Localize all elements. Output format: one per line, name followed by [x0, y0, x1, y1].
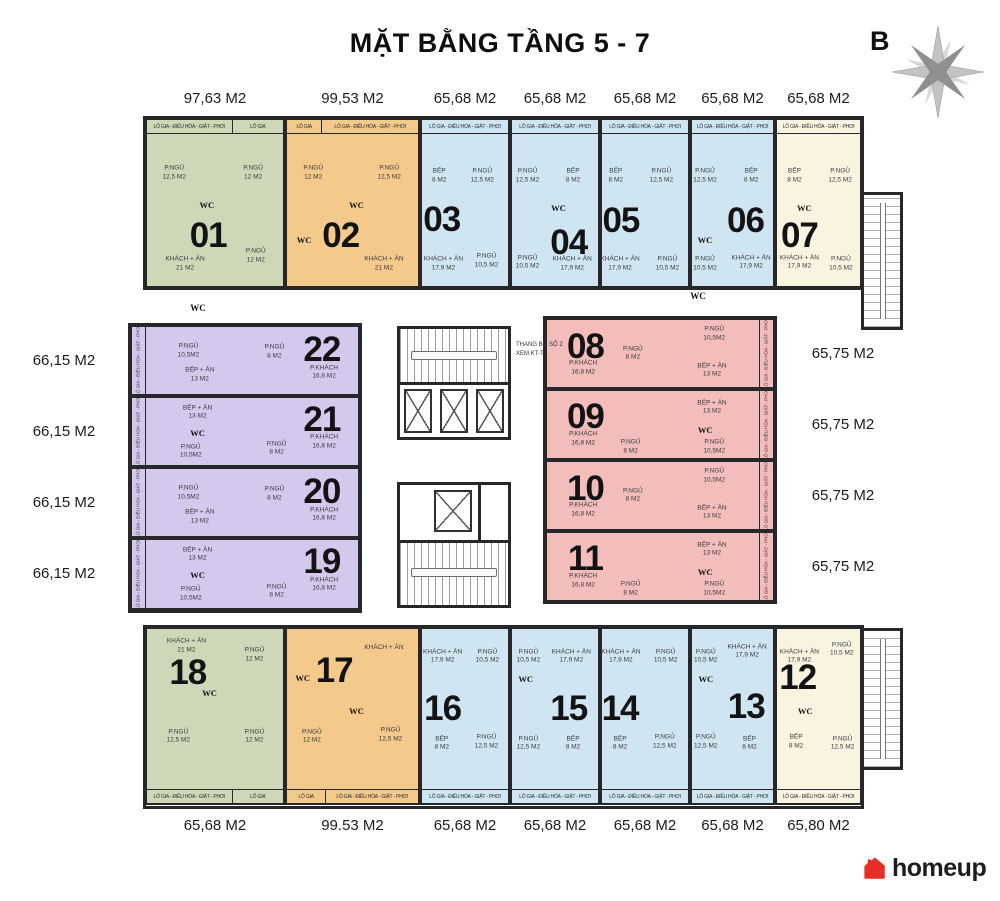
apartment-number-10: 10 [567, 469, 604, 509]
balcony-strip: LÔ GIA - ĐIỀU HÒA - GIẶT - PHƠI [602, 120, 688, 134]
room-label: P.NGỦ8 M2 [623, 345, 643, 362]
balcony-strip: LÔ GIA - ĐIỀU HÒA - GIẶT - PHƠI [777, 120, 860, 134]
balcony-strip: LÔ GIA - ĐIỀU HÒA - GIẶT - PHƠI [132, 540, 146, 608]
apartment-number-01: 01 [190, 216, 227, 256]
room-label: BẾP + ĂN13 M2 [697, 504, 726, 521]
area-label-19: 66,15 M2 [18, 565, 110, 582]
stair-note: THANG BỘ SỐ 2 XEM KT-T [516, 341, 563, 359]
area-label-20: 66,15 M2 [18, 494, 110, 511]
room-label: P.NGỦ12 M2 [245, 728, 265, 745]
wc-label: WC [798, 706, 813, 716]
apartment-number-05: 05 [602, 201, 639, 241]
room-label: P.NGỦ10,5M2 [178, 343, 200, 360]
wc-label: WC [518, 674, 533, 684]
compass-star-icon [890, 24, 986, 120]
apartment-number-20: 20 [303, 472, 340, 512]
apartment-21: LÔ GIA - ĐIỀU HÒA - GIẶT - PHƠIBẾP + ĂN1… [130, 396, 360, 467]
area-label-22: 66,15 M2 [18, 352, 110, 369]
balcony-strip: LÔ GIA - ĐIỀU HÒA - GIẶT - PHƠI [132, 398, 146, 465]
balcony-label: LÔ GIA - ĐIỀU HÒA - GIẶT - PHƠI [147, 790, 233, 803]
apartment-number-13: 13 [728, 687, 765, 727]
room-label: KHÁCH + ĂN17,9 M2 [601, 648, 640, 665]
elevator-icon [404, 389, 432, 433]
apartment-19: LÔ GIA - ĐIỀU HÒA - GIẶT - PHƠIBẾP + ĂN1… [130, 538, 360, 610]
elevator-icon [434, 490, 472, 532]
area-label-13: 65,68 M2 [690, 817, 775, 834]
room-label: P.NGỦ10,5 M2 [516, 254, 540, 271]
room-label: BẾP8 M2 [789, 734, 803, 751]
room-label: P.NGỦ12,5 M2 [653, 734, 677, 751]
corridor-wc-label: WC [190, 303, 206, 313]
room-label: P.NGỦ10,5M2 [703, 581, 725, 598]
area-label-10: 65,75 M2 [797, 487, 889, 504]
balcony-label: LÔ GIA - ĐIỀU HÒA - GIẶT - PHƠI [322, 120, 418, 133]
room-label: P.NGỦ10,5 M2 [694, 648, 718, 665]
stair-elevator-core-upper [397, 326, 511, 440]
room-label: P.NGỦ10,5 M2 [654, 648, 678, 665]
area-label-09: 65,75 M2 [797, 416, 889, 433]
balcony-strip: LÔ GIALÔ GIA - ĐIỀU HÒA - GIẶT - PHƠI [287, 120, 418, 134]
balcony-label: LÔ GIA - ĐIỀU HÒA - GIẶT - PHƠI [147, 120, 233, 133]
balcony-label: LÔ GIA - ĐIỀU HÒA - GIẶT - PHƠI [512, 120, 598, 133]
wc-label: WC [200, 200, 215, 210]
balcony-label: LÔ GIA - ĐIỀU HÒA - GIẶT - PHƠI [326, 790, 418, 803]
apartment-11: LÔ GIA - ĐIỀU HÒA - GIẶT - PHƠIP.KHÁCH16… [545, 531, 775, 602]
room-label: BẾP + ĂN13 M2 [185, 367, 214, 384]
balcony-strip: LÔ GIA - ĐIỀU HÒA - GIẶT - PHƠILÔ GIA [147, 789, 283, 803]
apartment-14: LÔ GIA - ĐIỀU HÒA - GIẶT - PHƠIKHÁCH + Ă… [600, 627, 690, 805]
room-label: P.NGỦ10,5M2 [180, 443, 202, 460]
area-label-07: 65,68 M2 [775, 90, 862, 107]
balcony-label: LÔ GIA - ĐIỀU HÒA - GIẶT - PHƠI [692, 120, 773, 133]
room-label: P.NGỦ12,5 M2 [162, 165, 186, 182]
corridor-wc-label: WC [690, 291, 706, 301]
room-label: BẾP8 M2 [435, 735, 449, 752]
room-label: P.NGỦ8 M2 [623, 487, 643, 504]
balcony-strip: LÔ GIA - ĐIỀU HÒA - GIẶT - PHƠI [512, 120, 598, 134]
balcony-label: LÔ GIA - ĐIỀU HÒA - GIẶT - PHƠI [764, 533, 769, 600]
apartment-number-14: 14 [602, 689, 639, 729]
room-label: KHÁCH + ĂN21 M2 [364, 256, 403, 273]
room-label: BẾP8 M2 [609, 168, 623, 185]
balcony-label: LÔ GIA - ĐIỀU HÒA - GIẶT - PHƠI [764, 462, 769, 529]
balcony-strip: LÔ GIA - ĐIỀU HÒA - GIẶT - PHƠI [422, 120, 508, 134]
balcony-strip: LÔ GIA - ĐIỀU HÒA - GIẶT - PHƠI [132, 469, 146, 536]
balcony-strip: LÔ GIA - ĐIỀU HÒA - GIẶT - PHƠILÔ GIA [147, 120, 283, 134]
apartment-08: LÔ GIA - ĐIỀU HÒA - GIẶT - PHƠIP.KHÁCH16… [545, 318, 775, 389]
balcony-label: LÔ GIA - ĐIỀU HÒA - GIẶT - PHƠI [692, 790, 773, 803]
apartment-number-08: 08 [567, 327, 604, 367]
room-label: P.NGỦ12 M2 [246, 248, 266, 265]
room-label: BẾP8 M2 [742, 735, 756, 752]
apartment-number-04: 04 [550, 223, 587, 263]
balcony-label: LÔ GIA - ĐIỀU HÒA - GIẶT - PHƠI [136, 398, 141, 465]
area-label-05: 65,68 M2 [600, 90, 690, 107]
balcony-label: LÔ GIA - ĐIỀU HÒA - GIẶT - PHƠI [136, 327, 141, 394]
room-label: KHÁCH + ĂN [364, 644, 403, 652]
room-label: P.NGỦ12,5 M2 [694, 734, 718, 751]
floor-plan-canvas: MẶT BẰNG TẦNG 5 - 7 B THANG BỘ SỐ 2 XEM … [0, 0, 1000, 901]
balcony-label: LÔ GIA [287, 120, 322, 133]
balcony-strip: LÔ GIA - ĐIỀU HÒA - GIẶT - PHƠI [692, 120, 773, 134]
balcony-label: LÔ GIA [287, 790, 326, 803]
area-label-15: 65,68 M2 [510, 817, 600, 834]
room-label: BẾP8 M2 [566, 168, 580, 185]
balcony-strip: LÔ GIA - ĐIỀU HÒA - GIẶT - PHƠI [512, 789, 598, 803]
room-label: P.NGỦ8 M2 [265, 344, 285, 361]
balcony-strip: LÔ GIA - ĐIỀU HÒA - GIẶT - PHƠI [759, 462, 773, 529]
room-label: KHÁCH + ĂN17,9 M2 [552, 648, 591, 665]
balcony-strip: LÔ GIA - ĐIỀU HÒA - GIẶT - PHƠI [759, 391, 773, 458]
apartment-number-22: 22 [303, 330, 340, 370]
apartment-15: LÔ GIA - ĐIỀU HÒA - GIẶT - PHƠIP.NGỦ10,5… [510, 627, 600, 805]
room-label: P.NGỦ8 M2 [621, 439, 641, 456]
apartment-17: LÔ GIALÔ GIA - ĐIỀU HÒA - GIẶT - PHƠIKHÁ… [285, 627, 420, 805]
compass-north-label: B [870, 26, 890, 57]
apartment-04: LÔ GIA - ĐIỀU HÒA - GIẶT - PHƠIP.NGỦ12,5… [510, 118, 600, 288]
stair-divider [880, 639, 886, 759]
apartment-07: LÔ GIA - ĐIỀU HÒA - GIẶT - PHƠIBẾP8 M2P.… [775, 118, 862, 288]
apartment-20: LÔ GIA - ĐIỀU HÒA - GIẶT - PHƠIP.NGỦ10,5… [130, 467, 360, 538]
apartment-number-12: 12 [779, 658, 816, 698]
apartment-number-11: 11 [568, 539, 603, 579]
room-label: KHÁCH + ĂN17,9 M2 [732, 254, 771, 271]
balcony-label: LÔ GIA - ĐIỀU HÒA - GIẶT - PHƠI [422, 120, 508, 133]
room-label: P.NGỦ8 M2 [265, 486, 285, 503]
wc-label: WC [297, 235, 312, 245]
balcony-strip: LÔ GIA - ĐIỀU HÒA - GIẶT - PHƠI [132, 327, 146, 394]
stair-note-line1: THANG BỘ SỐ 2 [516, 341, 563, 350]
apartment-03: LÔ GIA - ĐIỀU HÒA - GIẶT - PHƠIBẾP8 M2P.… [420, 118, 510, 288]
apartment-10: LÔ GIA - ĐIỀU HÒA - GIẶT - PHƠIP.KHÁCH16… [545, 460, 775, 531]
room-label: BẾP8 M2 [613, 735, 627, 752]
wc-label: WC [295, 673, 310, 683]
room-label: P.NGỦ10,5 M2 [517, 648, 541, 665]
area-label-12: 65,80 M2 [775, 817, 862, 834]
apartment-number-15: 15 [550, 689, 587, 729]
apartment-number-21: 21 [303, 400, 340, 440]
apartment-05: LÔ GIA - ĐIỀU HÒA - GIẶT - PHƠIBẾP8 M2P.… [600, 118, 690, 288]
wc-label: WC [190, 570, 205, 580]
balcony-strip: LÔ GIA - ĐIỀU HÒA - GIẶT - PHƠI [422, 789, 508, 803]
wc-label: WC [698, 425, 713, 435]
room-label: P.NGỦ10,5 M2 [693, 256, 717, 273]
room-label: P.NGỦ10,5M2 [703, 326, 725, 343]
apartment-06: LÔ GIA - ĐIỀU HÒA - GIẶT - PHƠIP.NGỦ12,5… [690, 118, 775, 288]
brand-logo: homeup [860, 848, 992, 888]
room-label: P.NGỦ12 M2 [302, 728, 322, 745]
house-icon [860, 854, 888, 882]
balcony-label: LÔ GIA - ĐIỀU HÒA - GIẶT - PHƠI [777, 120, 860, 133]
area-label-14: 65,68 M2 [600, 817, 690, 834]
wc-label: WC [797, 203, 812, 213]
apartment-number-16: 16 [424, 689, 461, 729]
room-label: P.NGỦ12,5 M2 [377, 165, 401, 182]
room-label: P.NGỦ12,5 M2 [516, 168, 540, 185]
room-label: P.NGỦ10,5 M2 [829, 256, 853, 273]
room-label: P.NGỦ10,5M2 [703, 439, 725, 456]
room-label: P.NGỦ8 M2 [267, 583, 287, 600]
room-label: P.NGỦ10,5M2 [703, 468, 725, 485]
room-label: BẾP8 M2 [787, 168, 801, 185]
wc-label: WC [698, 235, 713, 245]
room-label: KHÁCH + ĂN17,9 M2 [600, 256, 639, 273]
room-label: BẾP + ĂN13 M2 [697, 362, 726, 379]
side-staircase-bottom [861, 628, 903, 770]
wc-label: WC [698, 674, 713, 684]
area-label-16: 65,68 M2 [420, 817, 510, 834]
room-label: KHÁCH + ĂN17,9 M2 [780, 254, 819, 271]
apartment-18: LÔ GIA - ĐIỀU HÒA - GIẶT - PHƠILÔ GIAKHÁ… [145, 627, 285, 805]
area-label-08: 65,75 M2 [797, 345, 889, 362]
room-label: BẾP8 M2 [744, 168, 758, 185]
room-label: P.NGỦ12,5 M2 [167, 728, 191, 745]
elevator-icon [476, 389, 504, 433]
room-label: P.NGỦ10,5M2 [180, 586, 202, 603]
room-label: P.NGỦ8 M2 [267, 440, 287, 457]
room-label: P.NGỦ12,5 M2 [828, 168, 852, 185]
balcony-label: LÔ GIA - ĐIỀU HÒA - GIẶT - PHƠI [136, 540, 141, 608]
balcony-label: LÔ GIA - ĐIỀU HÒA - GIẶT - PHƠI [764, 391, 769, 458]
room-label: KHÁCH + ĂN17,9 M2 [424, 256, 463, 273]
room-label: BẾP8 M2 [566, 735, 580, 752]
room-label: P.NGỦ12,5 M2 [470, 168, 494, 185]
room-label: KHÁCH + ĂN21 M2 [165, 256, 204, 273]
room-label: BẾP + ĂN13 M2 [185, 509, 214, 526]
balcony-label: LÔ GIA - ĐIỀU HÒA - GIẶT - PHƠI [422, 790, 508, 803]
staircase-icon [400, 329, 508, 385]
area-label-01: 97,63 M2 [145, 90, 285, 107]
area-label-02: 99,53 M2 [285, 90, 420, 107]
room-label: P.NGỦ12,5 M2 [379, 727, 403, 744]
room-label: P.NGỦ12 M2 [303, 165, 323, 182]
wc-label: WC [698, 567, 713, 577]
stair-handrail [411, 351, 497, 360]
room-label: P.NGỦ12,5 M2 [517, 735, 541, 752]
area-label-11: 65,75 M2 [797, 558, 889, 575]
room-label: P.NGỦ12,5 M2 [475, 734, 499, 751]
apartment-number-02: 02 [322, 216, 359, 256]
apartment-01: LÔ GIA - ĐIỀU HÒA - GIẶT - PHƠILÔ GIAP.N… [145, 118, 285, 288]
apartment-number-18: 18 [169, 653, 206, 693]
balcony-strip: LÔ GIA - ĐIỀU HÒA - GIẶT - PHƠI [602, 789, 688, 803]
balcony-label: LÔ GIA - ĐIỀU HÒA - GIẶT - PHƠI [602, 120, 688, 133]
room-label: BẾP + ĂN13 M2 [183, 404, 212, 421]
elevator-bank [400, 382, 508, 437]
room-label: BẾP + ĂN13 M2 [697, 541, 726, 558]
apartment-12: LÔ GIA - ĐIỀU HÒA - GIẶT - PHƠIKHÁCH + Ă… [775, 627, 862, 805]
apartment-number-06: 06 [727, 201, 764, 241]
stair-note-line2: XEM KT-T [516, 350, 563, 359]
compass: B [858, 16, 988, 124]
area-label-03: 65,68 M2 [420, 90, 510, 107]
balcony-strip: LÔ GIA - ĐIỀU HÒA - GIẶT - PHƠI [759, 320, 773, 387]
apartment-number-03: 03 [423, 200, 460, 240]
balcony-label: LÔ GIA - ĐIỀU HÒA - GIẶT - PHƠI [602, 790, 688, 803]
stair-handrail [411, 568, 497, 577]
balcony-label: LÔ GIA [233, 790, 283, 803]
room-label: P.NGỦ10,5M2 [178, 485, 200, 502]
balcony-label: LÔ GIA - ĐIỀU HÒA - GIẶT - PHƠI [777, 790, 860, 803]
area-label-21: 66,15 M2 [18, 423, 110, 440]
balcony-strip: LÔ GIA - ĐIỀU HÒA - GIẶT - PHƠI [759, 533, 773, 600]
apartment-13: LÔ GIA - ĐIỀU HÒA - GIẶT - PHƠIP.NGỦ10,5… [690, 627, 775, 805]
balcony-label: LÔ GIA - ĐIỀU HÒA - GIẶT - PHƠI [512, 790, 598, 803]
balcony-strip: LÔ GIA - ĐIỀU HÒA - GIẶT - PHƠI [777, 789, 860, 803]
staircase-icon [400, 543, 508, 605]
elevator-lobby [400, 485, 508, 543]
apartment-02: LÔ GIALÔ GIA - ĐIỀU HÒA - GIẶT - PHƠIP.N… [285, 118, 420, 288]
apartment-number-07: 07 [781, 216, 818, 256]
stair-elevator-core-lower [397, 482, 511, 608]
area-label-17: 99.53 M2 [285, 817, 420, 834]
room-label: P.NGỦ8 M2 [621, 581, 641, 598]
room-label: P.NGỦ12 M2 [243, 165, 263, 182]
balcony-strip: LÔ GIA - ĐIỀU HÒA - GIẶT - PHƠI [692, 789, 773, 803]
room-label: P.NGỦ10,5 M2 [830, 641, 854, 658]
room-label: P.NGỦ10,5 M2 [476, 648, 500, 665]
wc-label: WC [349, 706, 364, 716]
room-label: BẾP + ĂN13 M2 [697, 399, 726, 416]
wc-label: WC [551, 203, 566, 213]
apartment-number-17: 17 [316, 651, 353, 691]
apartment-16: LÔ GIA - ĐIỀU HÒA - GIẶT - PHƠIKHÁCH + Ă… [420, 627, 510, 805]
room-label: KHÁCH + ĂN17,9 M2 [727, 643, 766, 660]
balcony-strip: LÔ GIALÔ GIA - ĐIỀU HÒA - GIẶT - PHƠI [287, 789, 418, 803]
stair-divider [880, 203, 886, 319]
room-label: P.NGỦ12,5 M2 [693, 168, 717, 185]
brand-name: homeup [892, 854, 986, 883]
balcony-label: LÔ GIA [233, 120, 283, 133]
room-label: P.NGỦ12,5 M2 [831, 735, 855, 752]
room-label: BẾP8 M2 [432, 168, 446, 185]
apartment-22: LÔ GIA - ĐIỀU HÒA - GIẶT - PHƠIP.NGỦ10,5… [130, 325, 360, 396]
room-label: KHÁCH + ĂN17,9 M2 [423, 648, 462, 665]
area-label-06: 65,68 M2 [690, 90, 775, 107]
wc-label: WC [349, 200, 364, 210]
apartment-number-09: 09 [567, 397, 604, 437]
area-label-18: 65,68 M2 [145, 817, 285, 834]
side-staircase-top [861, 192, 903, 330]
room-label: BẾP + ĂN13 M2 [183, 547, 212, 564]
wc-label: WC [190, 428, 205, 438]
room-label: P.NGỦ12,5 M2 [650, 168, 674, 185]
page-title: MẶT BẰNG TẦNG 5 - 7 [0, 28, 1000, 59]
balcony-label: LÔ GIA - ĐIỀU HÒA - GIẶT - PHƠI [764, 320, 769, 387]
room-label: P.NGỦ12 M2 [245, 647, 265, 664]
room-label: P.NGỦ10,5 M2 [475, 253, 499, 270]
core-wall [478, 485, 481, 540]
balcony-label: LÔ GIA - ĐIỀU HÒA - GIẶT - PHƠI [136, 469, 141, 536]
apartment-09: LÔ GIA - ĐIỀU HÒA - GIẶT - PHƠIP.KHÁCH16… [545, 389, 775, 460]
room-label: P.NGỦ10,5 M2 [656, 256, 680, 273]
area-label-04: 65,68 M2 [510, 90, 600, 107]
elevator-icon [440, 389, 468, 433]
apartment-number-19: 19 [303, 542, 340, 582]
